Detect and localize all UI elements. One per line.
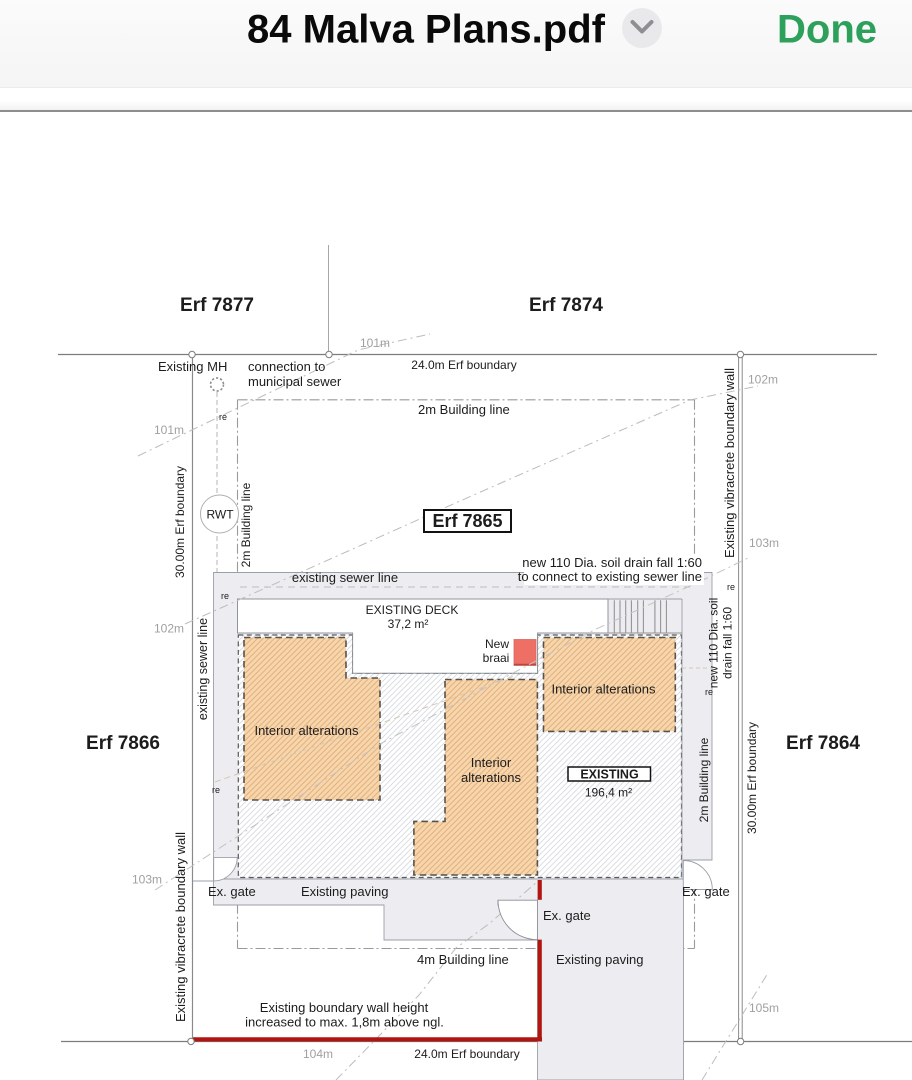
svg-text:Existing paving: Existing paving [556,952,643,967]
svg-text:EXISTING: EXISTING [580,768,638,782]
svg-text:Existing MH: Existing MH [158,359,227,374]
svg-text:30.00m Erf boundary: 30.00m Erf boundary [173,466,187,578]
svg-text:re: re [219,412,227,422]
svg-text:101m: 101m [360,336,390,350]
svg-text:Erf 7865: Erf 7865 [432,511,502,531]
svg-text:196,4 m²: 196,4 m² [585,786,632,800]
svg-text:24.0m Erf boundary: 24.0m Erf boundary [411,358,516,372]
svg-text:Existing vibracrete boundary w: Existing vibracrete boundary wall [173,832,188,1022]
svg-text:Erf 7864: Erf 7864 [786,733,860,754]
svg-text:103m: 103m [132,873,162,887]
svg-text:Existing vibracrete boundary w: Existing vibracrete boundary wall [722,368,737,558]
svg-text:2m Building line: 2m Building line [697,737,711,822]
svg-text:24.0m Erf boundary: 24.0m Erf boundary [414,1047,519,1061]
svg-text:Ex. gate: Ex. gate [543,908,591,923]
svg-text:Done: Done [777,8,877,52]
svg-text:102m: 102m [154,622,184,636]
svg-text:Ex. gate: Ex. gate [682,884,730,899]
svg-text:new 110 Dia. soil: new 110 Dia. soil [707,598,721,689]
svg-text:4m Building line: 4m Building line [417,952,509,967]
svg-text:105m: 105m [749,1001,779,1015]
svg-text:alterations: alterations [461,770,521,785]
svg-text:RWT: RWT [206,508,234,522]
svg-text:braai: braai [483,651,510,665]
svg-text:municipal sewer: municipal sewer [248,374,342,389]
svg-text:Erf 7866: Erf 7866 [86,733,160,754]
svg-text:102m: 102m [748,373,778,387]
svg-text:Existing paving: Existing paving [301,884,388,899]
svg-text:30.00m Erf boundary: 30.00m Erf boundary [745,722,759,834]
svg-text:connection to: connection to [248,359,325,374]
svg-text:increased to max. 1,8m above n: increased to max. 1,8m above ngl. [245,1015,444,1030]
svg-text:Ex. gate: Ex. gate [208,884,256,899]
svg-text:re: re [727,582,735,592]
svg-text:Interior: Interior [471,755,512,770]
svg-text:Existing boundary wall height: Existing boundary wall height [260,1000,429,1015]
svg-text:101m: 101m [154,423,184,437]
svg-text:2m Building line: 2m Building line [418,402,510,417]
svg-text:2m Building line: 2m Building line [239,482,253,567]
svg-text:to connect to existing sewer l: to connect to existing sewer line [518,569,702,584]
svg-text:EXISTING DECK: EXISTING DECK [366,603,459,617]
svg-text:New: New [485,637,509,651]
svg-text:new 110 Dia. soil drain fall 1: new 110 Dia. soil drain fall 1:60 [522,555,702,570]
svg-text:104m: 104m [303,1047,333,1061]
svg-text:84 Malva Plans.pdf: 84 Malva Plans.pdf [247,8,606,52]
svg-text:re: re [212,785,220,795]
svg-text:drain fall 1:60: drain fall 1:60 [721,607,735,679]
svg-text:Erf 7877: Erf 7877 [180,295,254,316]
svg-text:103m: 103m [749,536,779,550]
svg-text:re: re [221,591,229,601]
svg-text:Erf 7874: Erf 7874 [529,295,603,316]
svg-text:Interior alterations: Interior alterations [551,682,656,697]
svg-text:Interior alterations: Interior alterations [254,723,359,738]
svg-text:existing sewer line: existing sewer line [292,570,398,585]
svg-text:37,2 m²: 37,2 m² [388,617,429,631]
svg-text:existing sewer line: existing sewer line [196,618,210,720]
